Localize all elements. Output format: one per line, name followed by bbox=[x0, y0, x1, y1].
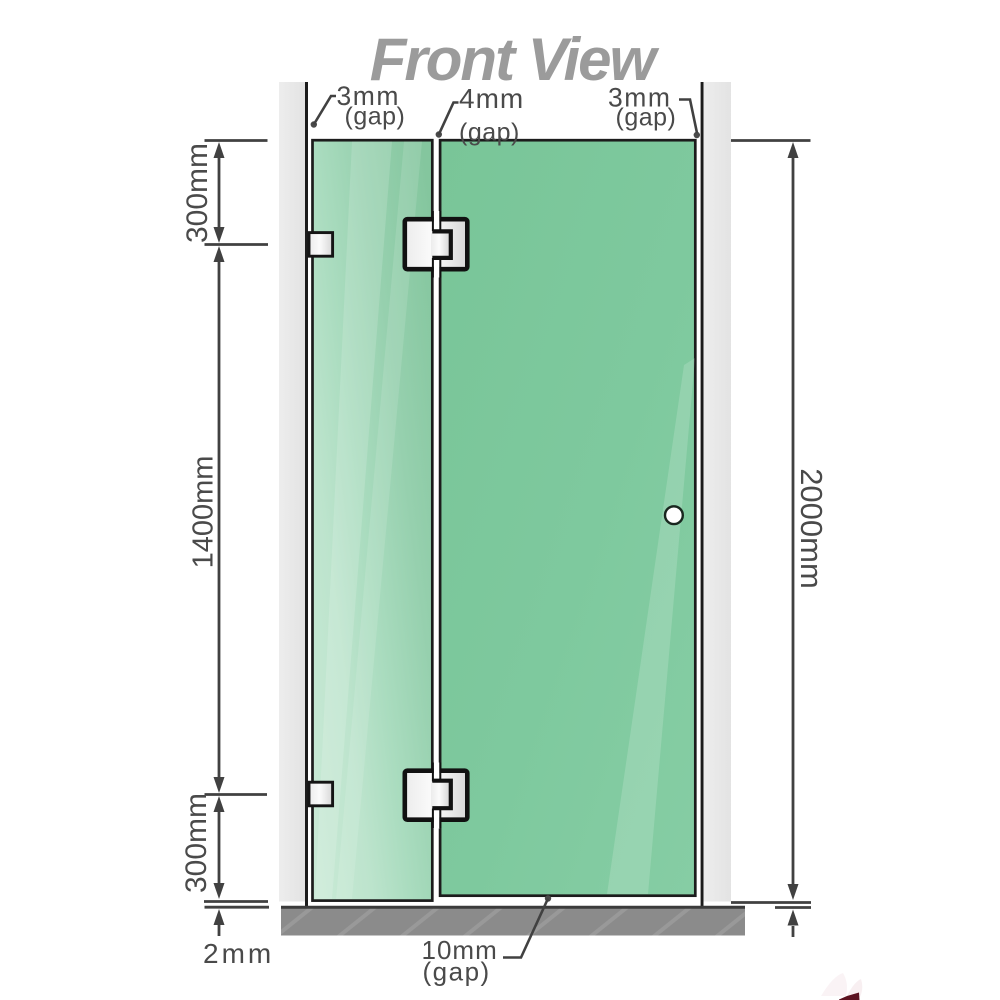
svg-text:2000mm: 2000mm bbox=[794, 468, 829, 589]
svg-text:(gap): (gap) bbox=[616, 104, 677, 132]
svg-text:300mm: 300mm bbox=[180, 793, 213, 893]
svg-text:1400mm: 1400mm bbox=[188, 456, 220, 569]
svg-text:(gap): (gap) bbox=[345, 103, 406, 131]
svg-text:300mm: 300mm bbox=[181, 143, 214, 243]
svg-text:(gap): (gap) bbox=[459, 119, 520, 147]
svg-text:2mm: 2mm bbox=[203, 938, 274, 969]
svg-text:(gap): (gap) bbox=[423, 957, 491, 987]
svg-text:4mm: 4mm bbox=[459, 83, 524, 114]
